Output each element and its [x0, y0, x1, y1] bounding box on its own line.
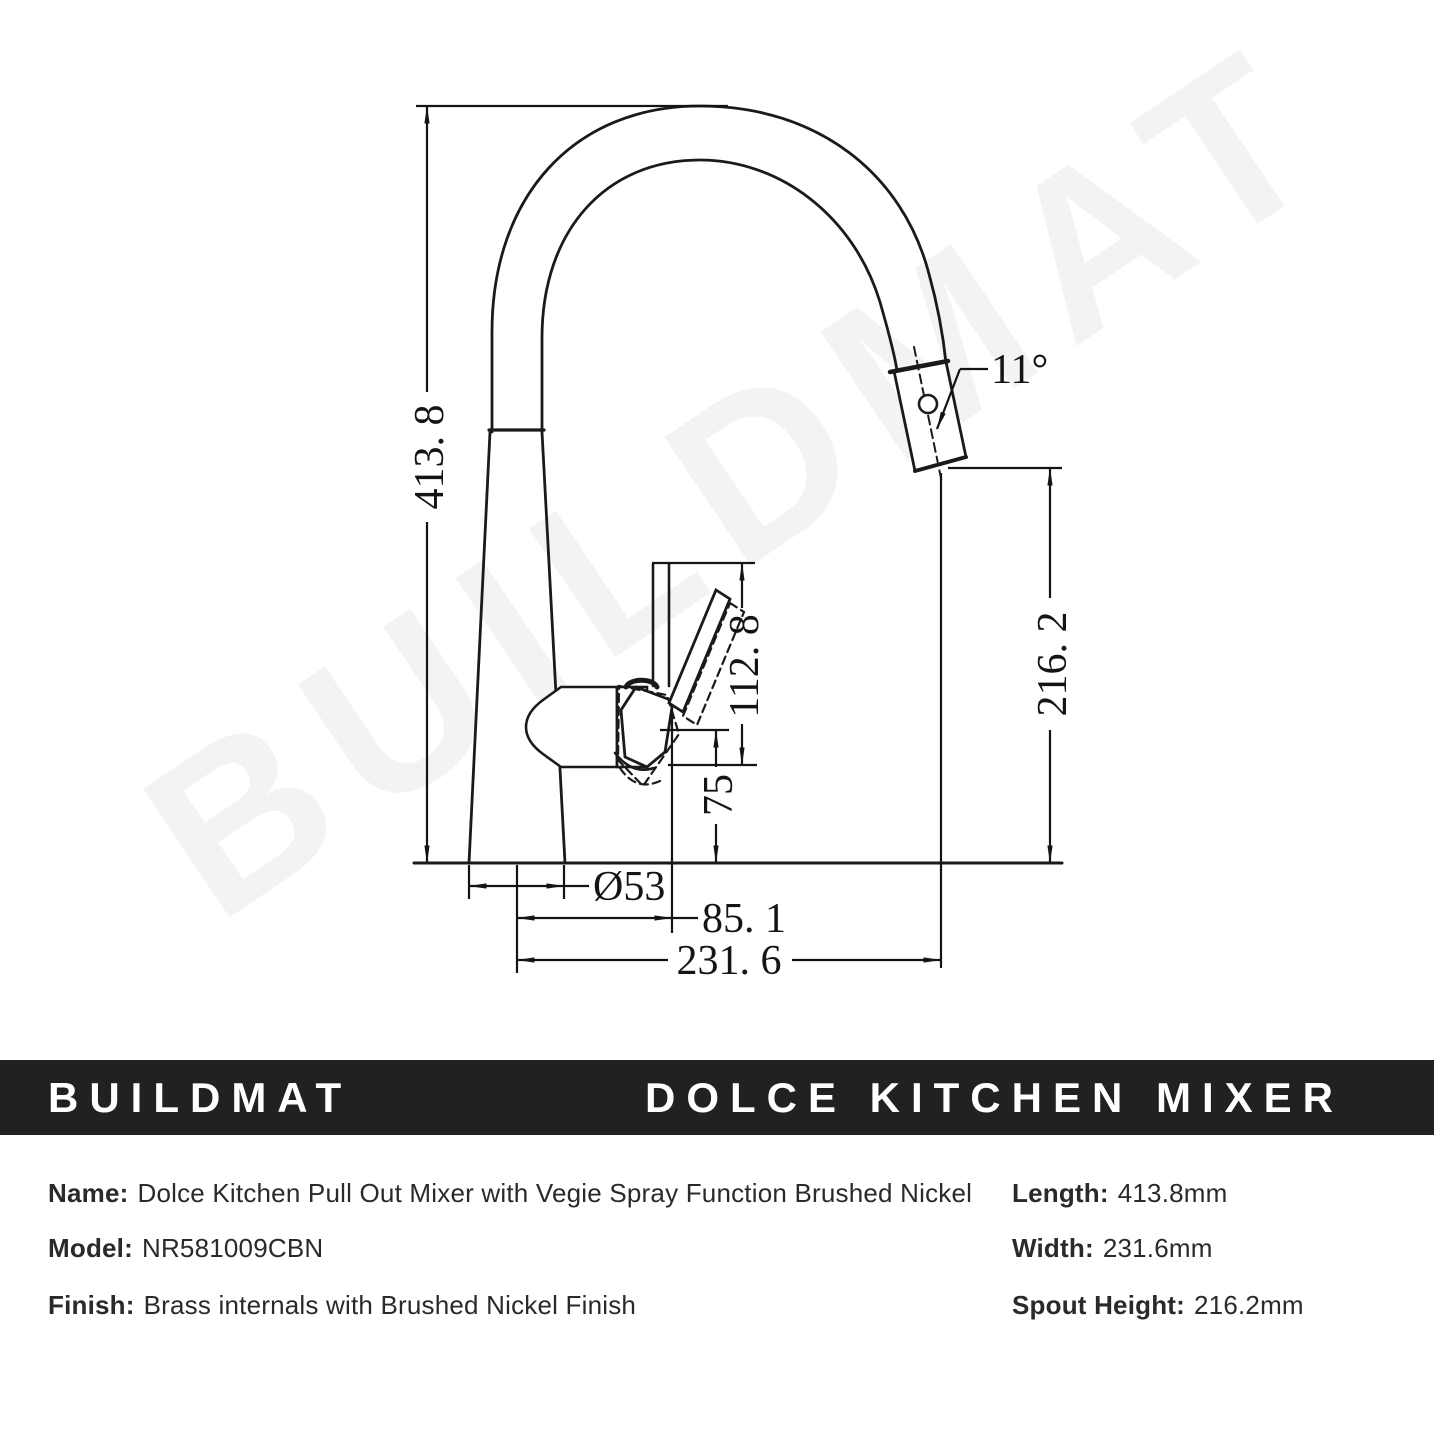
- technical-drawing: 413. 8 216. 2 112. 8 75 Ø53 85. 1 231. 6…: [0, 0, 1445, 1060]
- spec-row-spout-height: Spout Height:216.2mm: [1012, 1290, 1304, 1321]
- dim-label-body-height: 75: [696, 774, 742, 816]
- spec-label-name: Name:: [48, 1178, 128, 1208]
- dim-label-spout-height: 216. 2: [1030, 612, 1076, 717]
- product-title: DOLCE KITCHEN MIXER: [645, 1074, 1344, 1122]
- spec-row-model: Model:NR581009CBN: [48, 1233, 323, 1264]
- spec-value-name: Dolce Kitchen Pull Out Mixer with Vegie …: [137, 1178, 972, 1208]
- spec-row-finish: Finish:Brass internals with Brushed Nick…: [48, 1290, 636, 1321]
- neck-right-edge: [542, 432, 565, 863]
- spout-outer-curve: [492, 106, 946, 432]
- spec-label-spout-height: Spout Height:: [1012, 1290, 1185, 1320]
- spec-value-finish: Brass internals with Brushed Nickel Fini…: [144, 1290, 636, 1320]
- spec-label-model: Model:: [48, 1233, 133, 1263]
- dim-label-base-diameter: Ø53: [593, 864, 665, 910]
- spec-value-length: 413.8mm: [1118, 1178, 1228, 1208]
- spec-value-model: NR581009CBN: [142, 1233, 323, 1263]
- spec-label-finish: Finish:: [48, 1290, 135, 1320]
- spec-row-width: Width:231.6mm: [1012, 1233, 1213, 1264]
- dim-label-handle-height: 112. 8: [722, 614, 768, 717]
- spout-inner-curve: [542, 160, 897, 432]
- handle-lever-solid: [669, 590, 730, 712]
- spec-sheet-page: BUILDMAT: [0, 0, 1445, 1445]
- body-hex-nose: [526, 687, 617, 767]
- dim-label-total-height: 413. 8: [407, 405, 453, 510]
- neck-left-edge: [469, 432, 490, 863]
- handle-base-solid: [621, 687, 673, 767]
- dim-label-total-width: 231. 6: [677, 938, 782, 984]
- spec-row-length: Length:413.8mm: [1012, 1178, 1228, 1209]
- spec-label-width: Width:: [1012, 1233, 1094, 1263]
- spec-value-width: 231.6mm: [1103, 1233, 1213, 1263]
- spray-head-body: [894, 362, 966, 471]
- title-banner: BUILDMAT DOLCE KITCHEN MIXER: [0, 1060, 1434, 1135]
- spray-button: [919, 395, 937, 413]
- spec-label-length: Length:: [1012, 1178, 1109, 1208]
- dim-label-handle-projection: 85. 1: [702, 896, 786, 942]
- spec-row-name: Name:Dolce Kitchen Pull Out Mixer with V…: [48, 1178, 972, 1209]
- spec-value-spout-height: 216.2mm: [1194, 1290, 1304, 1320]
- dim-label-spray-angle: 11°: [991, 347, 1048, 393]
- brand-name: BUILDMAT: [48, 1074, 352, 1122]
